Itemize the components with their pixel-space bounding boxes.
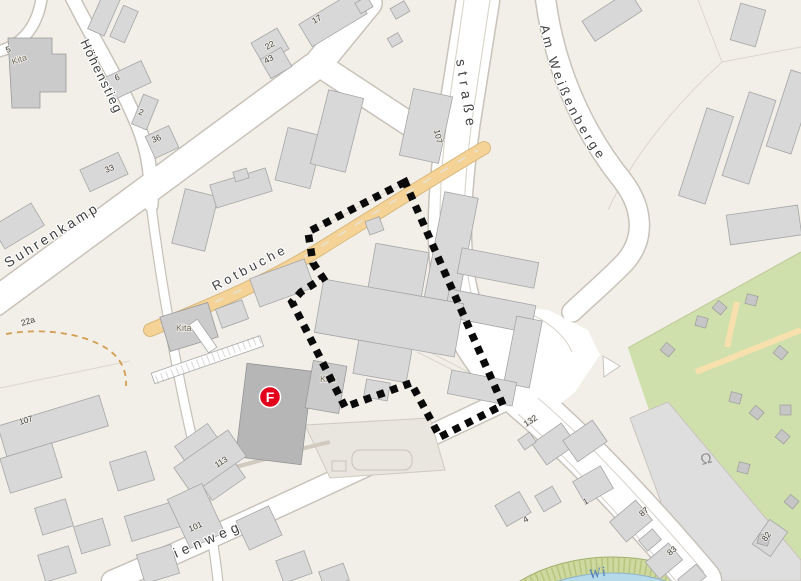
map-viewport[interactable]: Höhenstieg Suhrenkamp Rotbuche straße Am… bbox=[0, 0, 801, 581]
large-dark-building bbox=[236, 363, 313, 464]
kita-label-west: Kita bbox=[176, 323, 192, 333]
map-canvas[interactable]: Höhenstieg Suhrenkamp Rotbuche straße Am… bbox=[0, 0, 801, 581]
water-label: Wi bbox=[588, 564, 609, 581]
marker-letter: F bbox=[266, 389, 275, 405]
poi-marker-f[interactable]: F bbox=[260, 387, 281, 408]
